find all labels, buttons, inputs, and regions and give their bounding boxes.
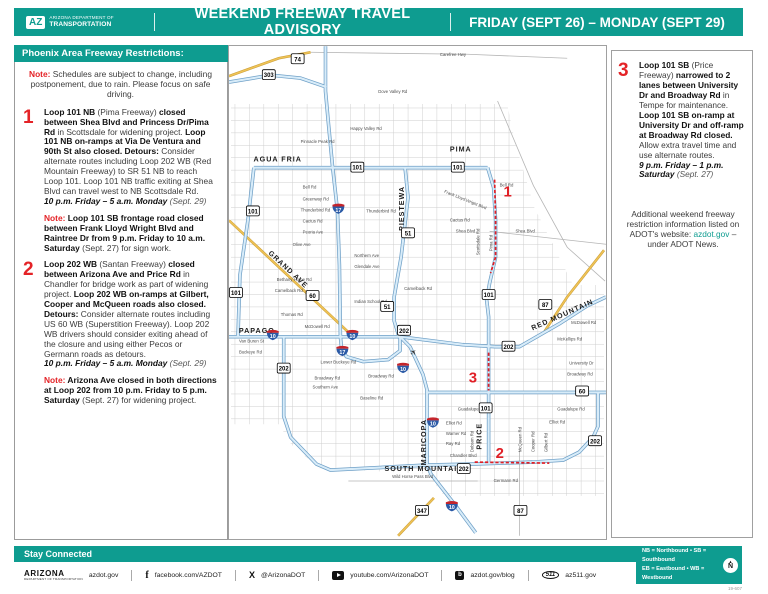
- youtube-link[interactable]: youtube.com/ArizonaDOT: [350, 572, 428, 579]
- route-shield-202: 202: [589, 436, 602, 446]
- header-bar: AZ ARIZONA DEPARTMENT OF TRANSPORTATION …: [14, 8, 743, 36]
- route-shield-60: 60: [576, 386, 589, 396]
- street-label: Broadway Rd: [567, 372, 593, 377]
- street-label: Broadway Rd: [315, 376, 341, 381]
- street-label: Germann Rd: [494, 478, 519, 483]
- svg-text:60: 60: [309, 294, 316, 300]
- svg-text:303: 303: [264, 73, 275, 79]
- north-arrow-icon: ▲ N: [723, 558, 738, 573]
- route-shield-101: 101: [479, 403, 492, 413]
- x-twitter-icon: X: [249, 570, 255, 580]
- street-label: Happy Valley Rd: [350, 126, 382, 131]
- text-run: Loop 101 SB: [639, 60, 692, 70]
- route-shield-101: 101: [351, 162, 364, 172]
- svg-text:51: 51: [405, 231, 412, 237]
- street-label: Elliot Rd: [549, 419, 566, 424]
- closure-marker-2: 2: [496, 445, 504, 462]
- restriction-note-1: Note: Loop 101 SB frontage road closed b…: [44, 214, 218, 254]
- svg-text:87: 87: [517, 509, 524, 515]
- text-run: (Sept. 27) for sign work.: [82, 243, 171, 253]
- svg-text:10: 10: [349, 334, 355, 340]
- advisory-title: WEEKEND FREEWAY TRAVEL ADVISORY: [155, 6, 450, 38]
- svg-text:347: 347: [417, 509, 428, 515]
- street-label: Gilbert Rd: [543, 432, 548, 452]
- phoenix-freeway-map: ✈Carefree HwyDove Valley RdHappy Valley …: [228, 45, 607, 540]
- route-shield-87: 87: [539, 299, 552, 309]
- restriction-text-1: Loop 101 NB (Pima Freeway) closed betwee…: [44, 108, 218, 207]
- street-label: Olive Ave: [293, 242, 312, 247]
- text-run: (Sept. 27) for widening project.: [82, 395, 196, 405]
- direction-legend: NB = Northbound • SB = Southbound EB = E…: [636, 546, 742, 584]
- street-label: Ray Rd: [446, 441, 461, 446]
- street-label: Thomas Rd: [281, 312, 304, 317]
- street-label: University Dr: [569, 361, 594, 366]
- freeway-name-label: PIMA: [450, 146, 472, 154]
- footer-separator: [318, 570, 319, 581]
- street-label: Scottsdale Rd: [476, 228, 481, 255]
- svg-text:101: 101: [248, 210, 259, 216]
- text-run: (Santan Freeway): [99, 259, 168, 269]
- adot-logo-mark: AZ: [26, 16, 45, 29]
- svg-text:101: 101: [231, 291, 242, 297]
- street-label: Southern Ave: [313, 384, 339, 389]
- restriction-note-2: Note: Arizona Ave closed in both directi…: [44, 376, 218, 406]
- svg-text:60: 60: [579, 390, 586, 396]
- facebook-icon: f: [145, 570, 148, 581]
- street-label: Carefree Hwy: [440, 52, 467, 57]
- svg-text:10: 10: [449, 505, 455, 511]
- text-run: Loop 101 NB: [44, 107, 98, 117]
- direction-legend-text: NB = Northbound • SB = Southbound EB = E…: [642, 547, 719, 583]
- svg-text:87: 87: [542, 303, 549, 309]
- stay-connected-label: Stay Connected: [24, 549, 92, 559]
- footer-separator: [528, 570, 529, 581]
- adot-footer-logo: ARIZONA DEPARTMENT OF TRANSPORTATION: [24, 570, 83, 581]
- advisory-date-range: FRIDAY (SEPT 26) – MONDAY (SEPT 29): [451, 15, 743, 30]
- street-label: Cactus Rd: [303, 218, 324, 223]
- route-shield-87: 87: [514, 505, 527, 515]
- street-label: Greenway Rd: [303, 196, 330, 201]
- closure-marker-1: 1: [504, 184, 512, 201]
- text-run: (Pima Freeway): [98, 107, 159, 117]
- svg-text:101: 101: [453, 166, 464, 172]
- text-run: (Sept. 27): [677, 169, 713, 179]
- text-run: Schedules are subject to change, includi…: [31, 69, 212, 99]
- svg-text:10: 10: [430, 422, 436, 428]
- freeway-name-label: AGUA FRIA: [254, 156, 302, 164]
- restriction-item-3: 3 Loop 101 SB (Price Freeway) narrowed t…: [618, 61, 744, 180]
- street-label: Van Buren St: [239, 339, 265, 344]
- street-label: Broadway Rd: [368, 374, 394, 379]
- street-label: Cooper Rd: [530, 431, 535, 452]
- street-label: Pinnacle Peak Rd: [301, 139, 336, 144]
- text-run[interactable]: azdot.gov: [693, 229, 729, 239]
- additional-info: Additional weekend freeway restriction i…: [626, 210, 740, 250]
- street-label: Dobson Rd: [470, 430, 475, 452]
- route-shield-60: 60: [306, 291, 319, 301]
- freeway-name-label: PRICE: [476, 423, 484, 450]
- facebook-link[interactable]: facebook.com/AZDOT: [155, 572, 222, 579]
- text-run: Allow extra travel time and use alternat…: [639, 140, 736, 160]
- text-run: in Scottsdale for widening project.: [58, 127, 186, 137]
- svg-text:101: 101: [481, 406, 492, 412]
- az511-link[interactable]: az511.gov: [565, 572, 596, 579]
- freeway-name-label: SOUTH MOUNTAIN: [384, 465, 463, 473]
- svg-text:51: 51: [384, 305, 391, 311]
- restrictions-panel: Phoenix Area Freeway Restrictions: Note:…: [14, 45, 228, 540]
- street-label: Glendale Ave: [354, 264, 380, 269]
- svg-text:10: 10: [270, 334, 276, 340]
- stay-connected-bar: Stay Connected: [14, 546, 742, 562]
- street-label: Thunderbird Rd: [366, 208, 396, 213]
- street-label: Thunderbird Rd: [301, 207, 331, 212]
- adot-logo-text: ARIZONA DEPARTMENT OF TRANSPORTATION: [49, 15, 113, 30]
- text-run: Detours:: [44, 309, 81, 319]
- svg-text:202: 202: [279, 367, 290, 373]
- svg-text:202: 202: [399, 329, 410, 335]
- street-label: Baseline Rd: [360, 395, 384, 400]
- svg-text:101: 101: [484, 293, 495, 299]
- text-run: (Sept. 29): [170, 196, 207, 206]
- footer-separator: [441, 570, 442, 581]
- restrictions-panel-title: Phoenix Area Freeway Restrictions:: [14, 45, 228, 62]
- route-shield-101: 101: [451, 162, 464, 172]
- restrictions-panel-body: Note: Schedules are subject to change, i…: [14, 62, 228, 540]
- street-label: Elliot Rd: [446, 420, 463, 425]
- blog-link[interactable]: azdot.gov/blog: [470, 572, 514, 579]
- route-shield-202: 202: [398, 325, 411, 335]
- document-number: 19-607: [696, 586, 742, 591]
- street-label: Wild Horse Pass Blvd: [392, 474, 434, 479]
- street-label: McDowell Rd: [571, 320, 597, 325]
- closure-line: [475, 462, 550, 463]
- street-label: Shea Blvd: [456, 228, 476, 233]
- restriction-text-3: Loop 101 SB (Price Freeway) narrowed to …: [639, 61, 744, 180]
- street-label: Pima Rd: [489, 234, 494, 251]
- phoenix-freeway-map-svg: ✈Carefree HwyDove Valley RdHappy Valley …: [229, 46, 606, 539]
- route-shield-51: 51: [381, 301, 394, 311]
- route-shield-101: 101: [246, 206, 259, 216]
- restriction-text-2: Loop 202 WB (Santan Freeway) closed betw…: [44, 260, 218, 369]
- text-run: Loop 202 WB: [44, 259, 99, 269]
- x-handle-link[interactable]: @ArizonaDOT: [261, 572, 305, 579]
- legend-line-2: EB = Eastbound • WB = Westbound: [642, 565, 719, 583]
- route-shield-74: 74: [291, 54, 304, 64]
- freeway-name-label: MARICOPA: [420, 419, 428, 465]
- street-label: Camelback Rd: [275, 288, 304, 293]
- route-shield-303: 303: [262, 70, 275, 80]
- legend-line-1: NB = Northbound • SB = Southbound: [642, 547, 719, 565]
- text-run: Note:: [44, 213, 68, 223]
- text-run: Loop 101 SB on-ramp at University Dr and…: [639, 110, 744, 140]
- svg-text:10: 10: [400, 367, 406, 373]
- text-run: 10 p.m. Friday – 5 a.m. Monday: [44, 196, 170, 206]
- footer-separator: [235, 570, 236, 581]
- restriction-number-1: 1: [23, 108, 44, 207]
- text-run: 10 p.m. Friday – 5 a.m. Monday: [44, 358, 170, 368]
- svg-text:74: 74: [294, 57, 301, 63]
- route-shield-202: 202: [502, 341, 515, 351]
- svg-text:202: 202: [590, 439, 601, 445]
- text-run: Detours:: [125, 146, 162, 156]
- svg-text:17: 17: [339, 350, 345, 356]
- street-label: Warner Rd: [446, 431, 467, 436]
- closure-marker-3: 3: [469, 370, 477, 387]
- restriction-item-2: 2 Loop 202 WB (Santan Freeway) closed be…: [23, 260, 218, 369]
- street-label: Guadalupe Rd: [557, 406, 585, 411]
- street-label: Northern Ave: [354, 253, 379, 258]
- route-shield-51: 51: [402, 228, 415, 238]
- route-shield-101: 101: [229, 288, 242, 298]
- north-label: N: [728, 563, 733, 570]
- website-link[interactable]: azdot.gov: [89, 572, 118, 579]
- restriction-number-2: 2: [23, 260, 44, 369]
- advisory-flyer: { "colors":{"teal":"#0E9C90","red":"#E42…: [0, 0, 768, 594]
- street-label: Shea Blvd: [515, 228, 535, 233]
- street-label: Dove Valley Rd: [378, 89, 408, 94]
- svg-text:202: 202: [504, 345, 515, 351]
- route-shield-202: 202: [277, 363, 290, 373]
- street-label: Peoria Ave: [303, 229, 324, 234]
- street-label: McQueen Rd: [517, 426, 522, 452]
- street-label: Cactus Rd: [450, 217, 471, 222]
- svg-text:202: 202: [459, 467, 470, 473]
- text-run: Note:: [44, 375, 67, 385]
- adot-logo-line2: TRANSPORTATION: [49, 21, 113, 30]
- route-shield-347: 347: [416, 505, 429, 515]
- freeway-name-label: PIESTEWA: [398, 186, 406, 231]
- street-label: McKellips Rd: [557, 337, 583, 342]
- restriction-panel-right: 3 Loop 101 SB (Price Freeway) narrowed t…: [611, 50, 753, 538]
- street-label: Camelback Rd: [404, 286, 433, 291]
- restriction-item-1: 1 Loop 101 NB (Pima Freeway) closed betw…: [23, 108, 218, 207]
- az511-icon: 511: [542, 571, 560, 579]
- svg-text:101: 101: [352, 166, 363, 172]
- street-label: Chandler Blvd: [450, 453, 477, 458]
- street-label: Bell Rd: [303, 185, 317, 190]
- text-run: (Sept. 29): [170, 358, 207, 368]
- svg-text:17: 17: [335, 208, 341, 214]
- street-label: Lower Buckeye Rd: [321, 360, 357, 365]
- restriction-number-3: 3: [618, 61, 639, 180]
- blog-icon: b: [455, 571, 464, 580]
- youtube-icon: [332, 571, 344, 580]
- street-label: Buckeye Rd: [239, 350, 263, 355]
- route-shield-202: 202: [457, 464, 470, 474]
- footer-separator: [131, 570, 132, 581]
- street-label: McDowell Rd: [305, 324, 331, 329]
- adot-footer-logo-line2: DEPARTMENT OF TRANSPORTATION: [24, 578, 83, 581]
- adot-logo: AZ ARIZONA DEPARTMENT OF TRANSPORTATION: [14, 15, 154, 30]
- text-run: Note:: [29, 69, 53, 79]
- schedule-note: Note: Schedules are subject to change, i…: [29, 70, 212, 100]
- route-shield-101: 101: [482, 290, 495, 300]
- social-links-row: ARIZONA DEPARTMENT OF TRANSPORTATION azd…: [14, 562, 634, 588]
